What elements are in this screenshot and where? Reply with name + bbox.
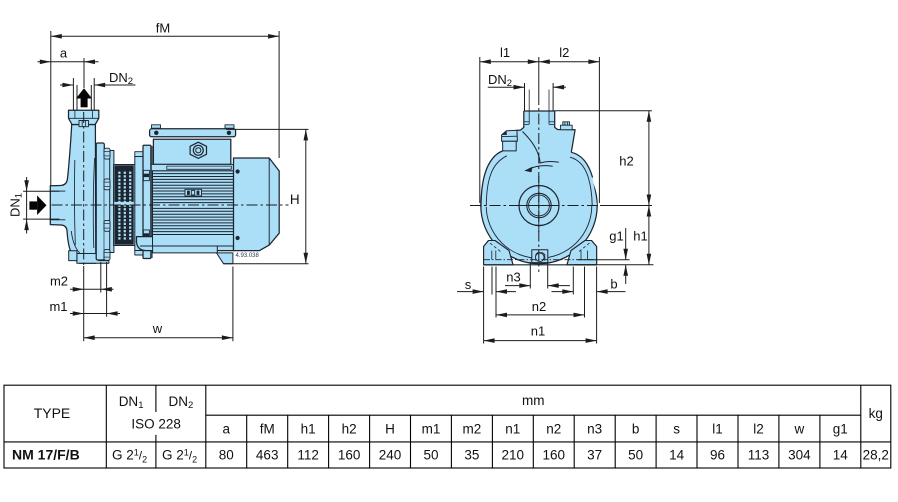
svg-text:m1: m1 <box>49 299 67 314</box>
svg-text:n3: n3 <box>506 270 520 285</box>
svg-text:m2: m2 <box>463 422 482 437</box>
svg-text:96: 96 <box>710 448 725 463</box>
svg-text:s: s <box>673 422 680 437</box>
svg-text:fM: fM <box>260 422 275 437</box>
svg-text:50: 50 <box>628 448 643 463</box>
svg-text:210: 210 <box>502 448 525 463</box>
svg-text:H: H <box>290 192 300 207</box>
svg-text:h1: h1 <box>301 422 316 437</box>
svg-text:240: 240 <box>379 448 402 463</box>
svg-text:TYPE: TYPE <box>34 405 71 421</box>
svg-text:h1: h1 <box>633 229 647 244</box>
svg-text:n1: n1 <box>505 422 520 437</box>
svg-text:n1: n1 <box>531 324 545 339</box>
svg-text:g1: g1 <box>833 422 848 437</box>
svg-text:4.93.038: 4.93.038 <box>236 253 260 259</box>
svg-text:304: 304 <box>788 448 811 463</box>
svg-text:w: w <box>152 321 163 336</box>
svg-text:160: 160 <box>338 448 361 463</box>
svg-text:w: w <box>794 422 805 437</box>
svg-text:35: 35 <box>464 448 479 463</box>
svg-text:l1: l1 <box>500 45 510 60</box>
svg-text:h2: h2 <box>619 154 633 169</box>
svg-text:G 21/2: G 21/2 <box>112 448 147 465</box>
svg-text:s: s <box>465 277 472 292</box>
svg-text:160: 160 <box>543 448 566 463</box>
svg-text:a: a <box>60 45 68 60</box>
svg-text:m1: m1 <box>422 422 441 437</box>
svg-text:G 21/2: G 21/2 <box>162 448 197 465</box>
svg-text:14: 14 <box>669 448 685 463</box>
svg-text:b: b <box>632 422 640 437</box>
svg-text:n2: n2 <box>546 422 561 437</box>
svg-text:H: H <box>385 422 395 437</box>
svg-text:ISO 228: ISO 228 <box>131 417 181 432</box>
svg-text:l2: l2 <box>753 422 764 437</box>
svg-text:mm: mm <box>522 393 545 408</box>
svg-text:l1: l1 <box>712 422 723 437</box>
svg-text:m2: m2 <box>50 273 68 288</box>
svg-text:113: 113 <box>748 448 770 463</box>
svg-text:h2: h2 <box>342 422 357 437</box>
svg-text:b: b <box>610 277 617 292</box>
svg-text:kg: kg <box>869 406 883 421</box>
svg-text:463: 463 <box>256 448 279 463</box>
svg-text:l2: l2 <box>559 45 569 60</box>
svg-text:14: 14 <box>833 448 849 463</box>
svg-text:112: 112 <box>297 448 319 463</box>
svg-text:80: 80 <box>219 448 234 463</box>
svg-text:fM: fM <box>156 21 170 36</box>
svg-text:NM 17/F/B: NM 17/F/B <box>12 447 80 463</box>
svg-text:n3: n3 <box>587 422 602 437</box>
svg-text:n2: n2 <box>532 299 546 314</box>
svg-text:g1: g1 <box>609 229 623 244</box>
svg-text:a: a <box>223 422 231 437</box>
svg-text:37: 37 <box>587 448 602 463</box>
svg-text:28,2: 28,2 <box>863 448 889 463</box>
svg-text:50: 50 <box>423 448 438 463</box>
